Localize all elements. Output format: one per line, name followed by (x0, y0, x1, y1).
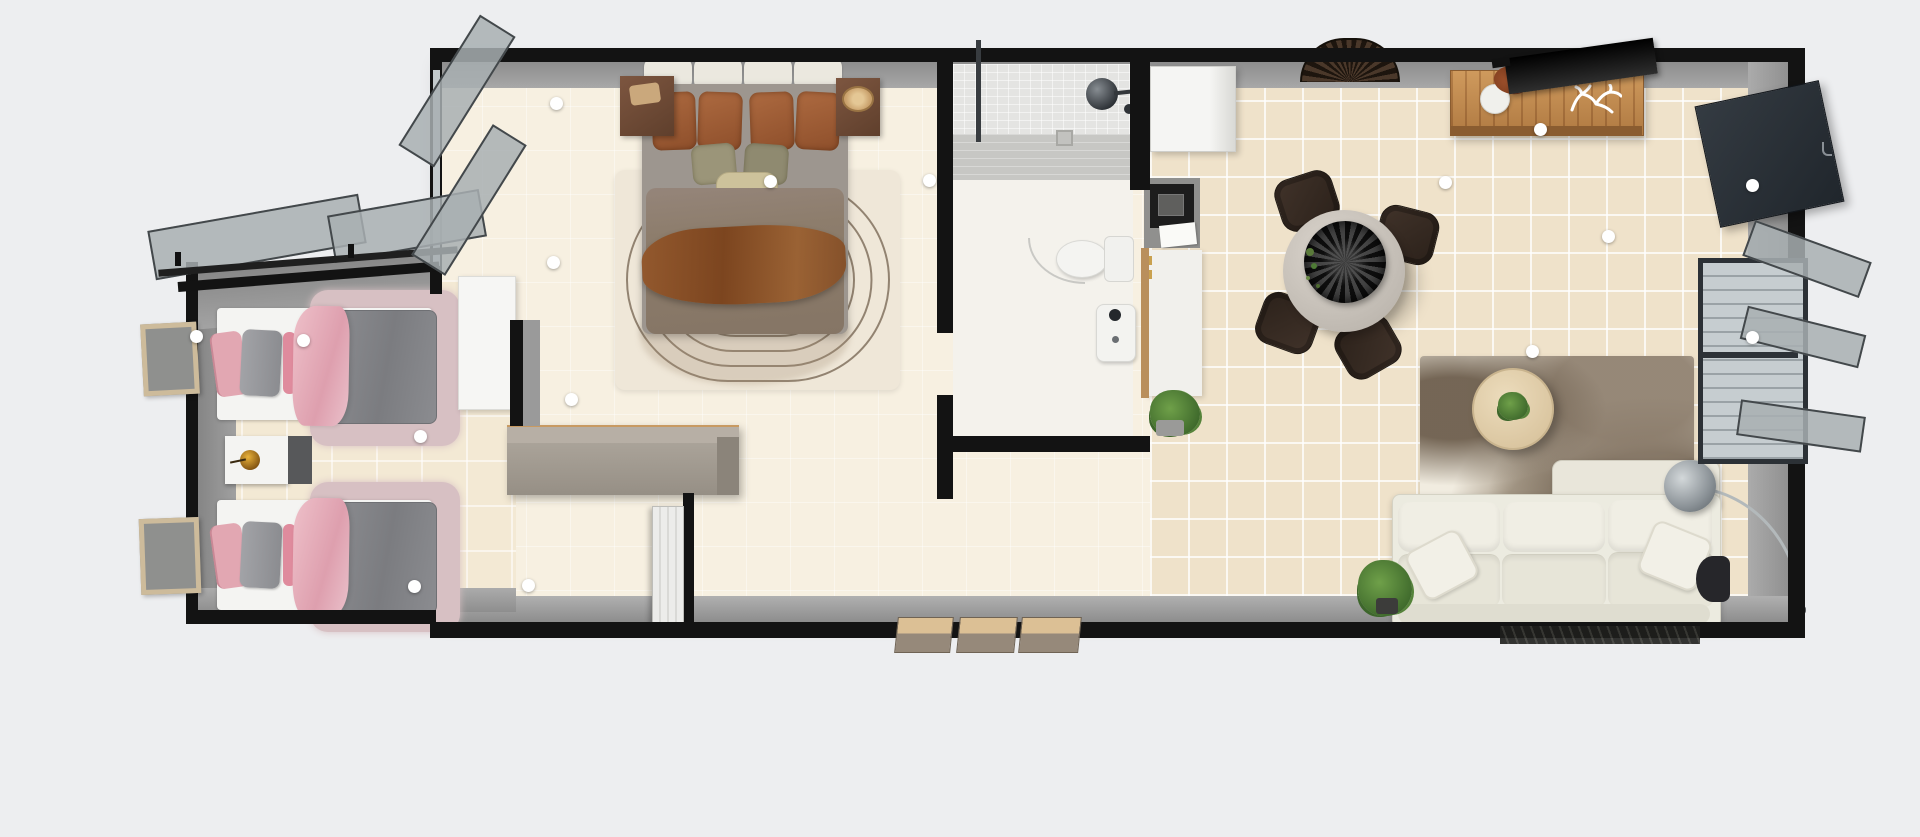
shower-drain (1056, 130, 1073, 146)
twin-bottom-wall (186, 610, 436, 624)
bathroom-bottom-wall (945, 436, 1150, 452)
hall-sideboard-top (507, 425, 739, 445)
right-window-mullion (1698, 352, 1798, 358)
floorplan-canvas (0, 0, 1920, 837)
rust-pillow (697, 91, 743, 151)
handle-dot[interactable] (1439, 176, 1452, 189)
handle-dot[interactable] (1746, 331, 1759, 344)
handle-dot[interactable] (1526, 345, 1539, 358)
table-greenery (1306, 248, 1314, 256)
nightstand-basket (842, 86, 874, 112)
handle-dot[interactable] (1746, 179, 1759, 192)
wall-frame[interactable] (139, 517, 202, 595)
interior-door[interactable] (652, 506, 684, 624)
kitchen-counter[interactable] (1146, 250, 1202, 396)
toilet-bowl (1056, 240, 1108, 278)
toilet[interactable] (1028, 232, 1134, 284)
handle-dot[interactable] (764, 175, 777, 188)
arc-lamp-sphere[interactable] (1664, 460, 1716, 512)
twin-bed-2-gray-pillow (239, 521, 282, 589)
twin-bed-2-pink-blanket (292, 498, 350, 617)
bath-kitchen-wall (1130, 58, 1150, 190)
window-hardware (348, 244, 354, 258)
sofa-back-cushion (1503, 502, 1605, 552)
nightstand-decor (629, 82, 661, 106)
wall-tv-panel[interactable] (1694, 80, 1844, 228)
handle-dot[interactable] (1534, 123, 1547, 136)
hall-wall-stub (683, 493, 694, 624)
oven-inset (1158, 194, 1184, 216)
twin-bed-2[interactable] (205, 494, 445, 626)
twin-bed-1-gray-pillow (239, 329, 282, 397)
handle-dot[interactable] (414, 430, 427, 443)
twin-right-wall (510, 320, 523, 426)
entry-step (956, 617, 1018, 653)
twin-bed-1[interactable] (205, 302, 445, 434)
handle-dot[interactable] (547, 256, 560, 269)
shower-column (976, 40, 981, 142)
oven-unit[interactable] (1144, 178, 1200, 248)
basin-knob (1112, 336, 1119, 343)
door-mat (1500, 626, 1700, 644)
kitchen-plant-pot (1156, 420, 1184, 436)
twin-right-wall-face (523, 320, 540, 426)
handle-dot[interactable] (565, 393, 578, 406)
coffee-table-plant (1498, 392, 1528, 420)
basin-faucet (1109, 309, 1121, 321)
sofa-front-base (1398, 604, 1710, 624)
sofa-seat-cushion (1502, 554, 1606, 607)
twin-dresser[interactable] (458, 276, 516, 410)
toilet-tank (1104, 236, 1134, 282)
hall-sideboard-side (717, 437, 739, 495)
bathroom-west-wall-upper (937, 58, 953, 333)
handle-dot[interactable] (408, 580, 421, 593)
handle-dot[interactable] (190, 330, 203, 343)
handle-dot[interactable] (1602, 230, 1615, 243)
hall-sideboard-front (507, 443, 717, 495)
oven-tray (1159, 222, 1197, 248)
entry-step (1018, 617, 1082, 653)
handle-dot[interactable] (550, 97, 563, 110)
coral-decor[interactable] (1566, 84, 1622, 116)
entry-step (894, 617, 954, 653)
window-hardware (175, 252, 181, 266)
twin-bed-1-pink-blanket (292, 306, 350, 427)
rust-pillow (749, 91, 795, 151)
refrigerator[interactable] (1150, 66, 1236, 152)
sofa-plant-pot (1376, 598, 1398, 614)
pendant-bowl[interactable] (1304, 221, 1386, 303)
hall-sideboard[interactable] (507, 425, 739, 495)
handle-dot[interactable] (297, 334, 310, 347)
kitchen-wood-strip (1141, 248, 1149, 398)
handle-dot[interactable] (923, 174, 936, 187)
panel-hook (1822, 142, 1832, 156)
rust-pillow (795, 91, 842, 151)
handle-dot[interactable] (522, 579, 535, 592)
twin-nightstand-drawer (288, 436, 312, 484)
